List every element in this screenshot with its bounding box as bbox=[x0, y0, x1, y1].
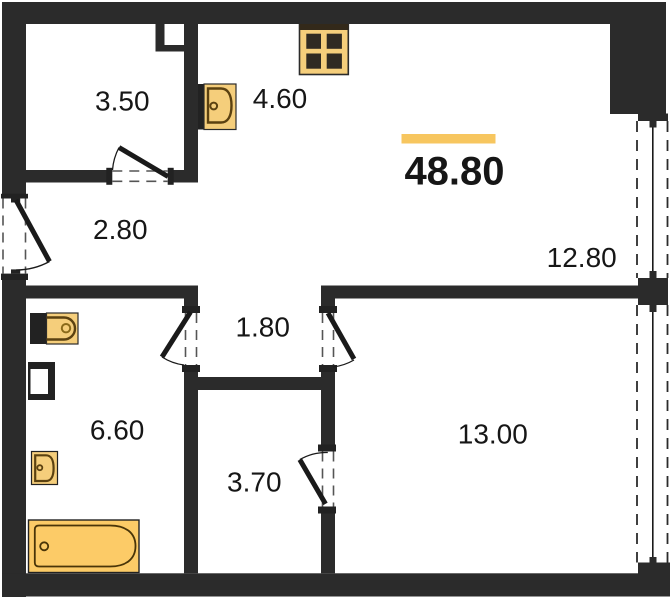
svg-text:48.80: 48.80 bbox=[404, 149, 504, 193]
svg-text:2.80: 2.80 bbox=[93, 214, 148, 245]
svg-text:13.00: 13.00 bbox=[458, 419, 528, 450]
svg-text:6.60: 6.60 bbox=[90, 414, 145, 445]
svg-text:4.60: 4.60 bbox=[253, 83, 308, 114]
svg-text:3.70: 3.70 bbox=[227, 467, 282, 498]
svg-text:3.50: 3.50 bbox=[95, 86, 150, 117]
svg-text:1.80: 1.80 bbox=[235, 311, 290, 342]
svg-text:12.80: 12.80 bbox=[547, 242, 617, 273]
